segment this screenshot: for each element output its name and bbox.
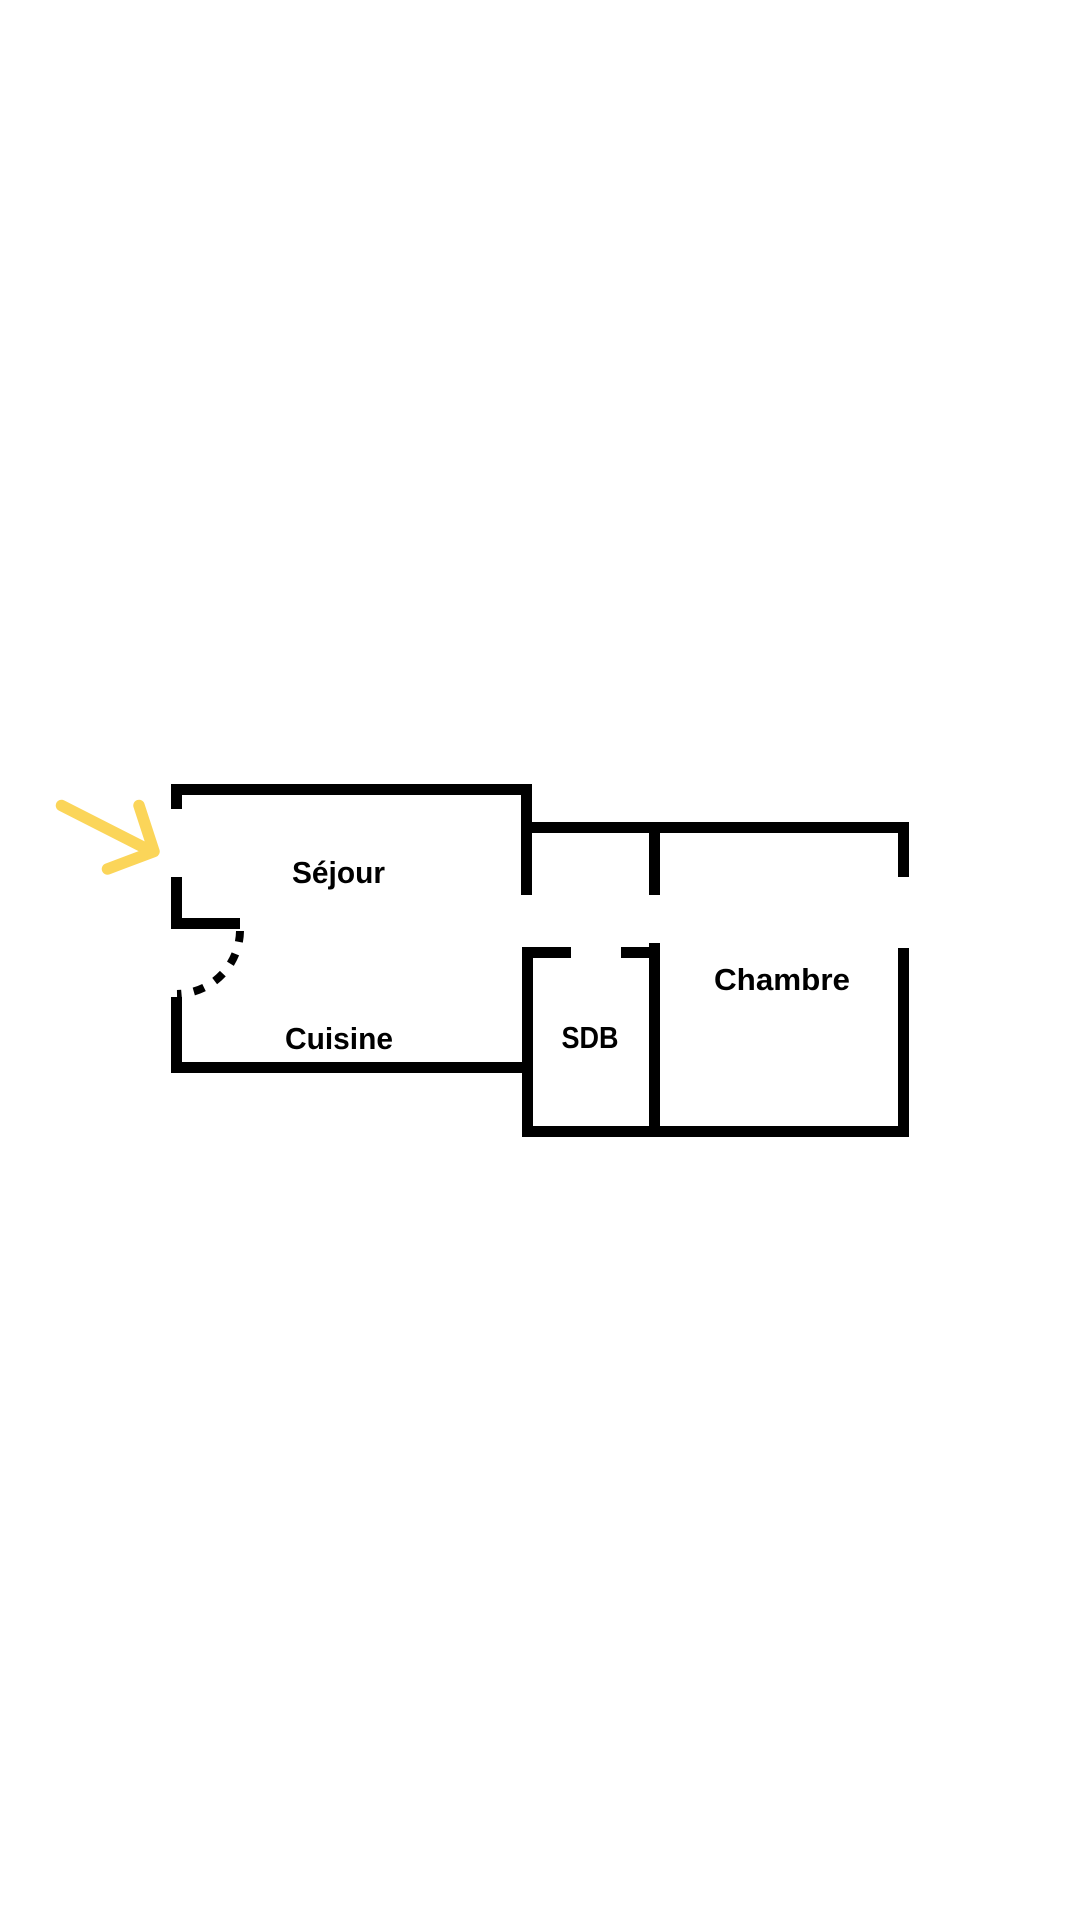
svg-text:Cuisine: Cuisine [285, 1021, 393, 1056]
svg-text:SDB: SDB [562, 1020, 619, 1055]
svg-text:Chambre: Chambre [714, 962, 850, 997]
svg-text:Séjour: Séjour [292, 855, 385, 890]
